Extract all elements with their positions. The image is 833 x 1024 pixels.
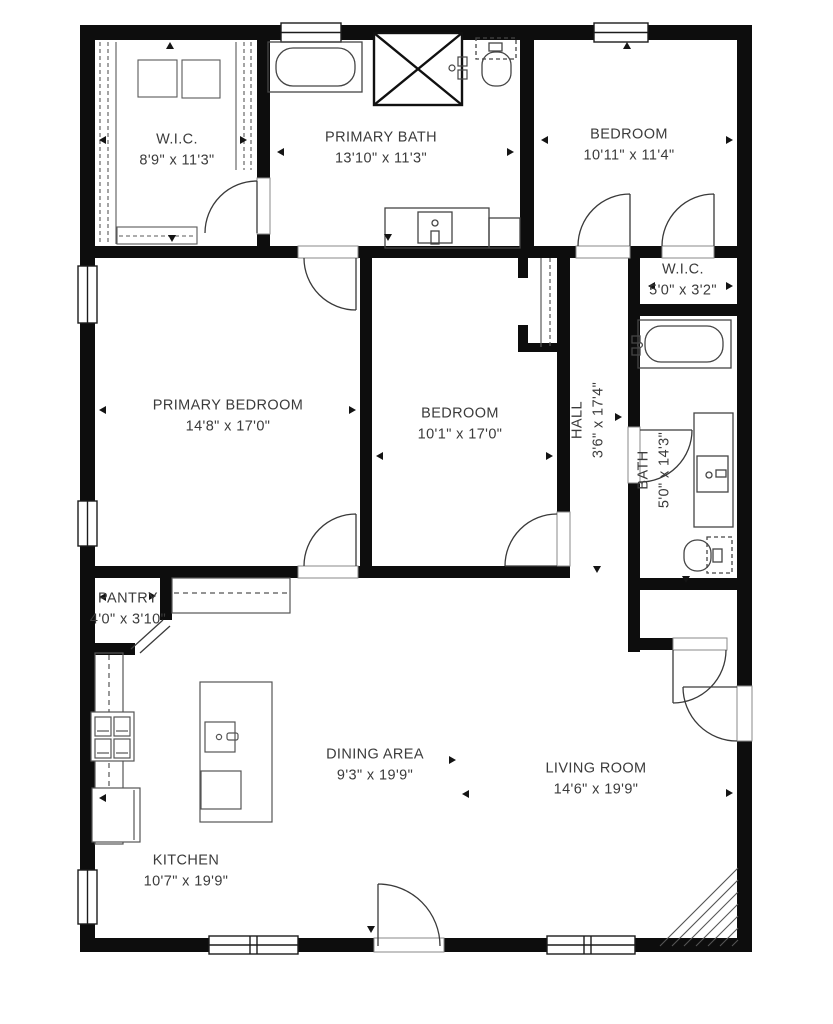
room-label-bath: BATH 5'0" x 14'3" xyxy=(633,432,674,508)
room-label-primary-bath: PRIMARY BATH 13'10" x 11'3" xyxy=(325,127,437,168)
door-side-exterior xyxy=(683,687,737,741)
door-wic-hall xyxy=(662,194,714,246)
room-name: HALL xyxy=(567,382,588,458)
room-label-wic-primary: W.I.C. 8'9" x 11'3" xyxy=(139,129,214,170)
room-label-pantry: PANTRY 4'0" x 3'10" xyxy=(90,588,166,629)
room-name: BEDROOM xyxy=(418,403,503,424)
room-dims: 14'6" x 19'9" xyxy=(545,779,646,800)
kitchen-counter-top xyxy=(172,578,290,613)
room-name: KITCHEN xyxy=(144,850,229,871)
room-label-wic-hall: W.I.C. 5'0" x 3'2" xyxy=(649,259,717,300)
bathtub-icon xyxy=(268,42,362,92)
room-name: W.I.C. xyxy=(649,259,717,280)
room-dims: 9'3" x 19'9" xyxy=(326,765,424,786)
room-label-bedroom-middle: BEDROOM 10'1" x 17'0" xyxy=(418,403,503,444)
room-name: PRIMARY BEDROOM xyxy=(153,395,304,416)
door-wic-primary xyxy=(205,181,257,233)
door-front-entry xyxy=(378,884,440,946)
vanity-sink-icon xyxy=(694,413,733,527)
shower-icon xyxy=(374,33,467,105)
room-name: BEDROOM xyxy=(583,124,674,145)
dresser xyxy=(182,60,220,98)
bathtub-icon xyxy=(632,320,731,368)
room-label-hall: HALL 3'6" x 17'4" xyxy=(567,382,608,458)
room-name: DINING AREA xyxy=(326,744,424,765)
dresser xyxy=(138,60,177,97)
door-bedroom-middle xyxy=(505,514,557,566)
room-label-bedroom-top: BEDROOM 10'11" x 11'4" xyxy=(583,124,674,165)
toilet-icon xyxy=(684,537,732,573)
refrigerator-icon xyxy=(92,788,140,842)
room-label-kitchen: KITCHEN 10'7" x 19'9" xyxy=(144,850,229,891)
kitchen-island xyxy=(200,682,272,822)
toilet-icon xyxy=(476,38,516,86)
room-name: PANTRY xyxy=(90,588,166,609)
room-name: LIVING ROOM xyxy=(545,758,646,779)
stairs-hatch-icon xyxy=(660,868,738,946)
room-label-primary-bedroom: PRIMARY BEDROOM 14'8" x 17'0" xyxy=(153,395,304,436)
door-primary-bedroom xyxy=(304,514,356,566)
door-primary-bath xyxy=(304,258,356,310)
room-dims: 10'1" x 17'0" xyxy=(418,424,503,445)
room-dims: 13'10" x 11'3" xyxy=(325,148,437,169)
room-dims: 4'0" x 3'10" xyxy=(90,609,166,630)
room-name: PRIMARY BATH xyxy=(325,127,437,148)
room-dims: 14'8" x 17'0" xyxy=(153,416,304,437)
room-dims: 8'9" x 11'3" xyxy=(139,150,214,171)
door-living-closet xyxy=(673,650,726,703)
doors xyxy=(131,181,737,946)
room-name: W.I.C. xyxy=(139,129,214,150)
room-dims: 10'11" x 11'4" xyxy=(583,145,674,166)
vanity-sink-icon xyxy=(385,208,520,248)
door-bedroom-top xyxy=(578,194,630,246)
room-label-dining-area: DINING AREA 9'3" x 19'9" xyxy=(326,744,424,785)
room-label-living-room: LIVING ROOM 14'6" x 19'9" xyxy=(545,758,646,799)
room-dims: 3'6" x 17'4" xyxy=(588,382,609,458)
room-dims: 5'0" x 3'2" xyxy=(649,280,717,301)
cooktop-icon xyxy=(91,712,134,761)
room-name: BATH xyxy=(633,432,654,508)
room-dims: 10'7" x 19'9" xyxy=(144,871,229,892)
floor-plan: W.I.C. 8'9" x 11'3" PRIMARY BATH 13'10" … xyxy=(0,0,833,1024)
sliding-closet-door-icon xyxy=(541,258,550,347)
room-dims: 5'0" x 14'3" xyxy=(654,432,675,508)
